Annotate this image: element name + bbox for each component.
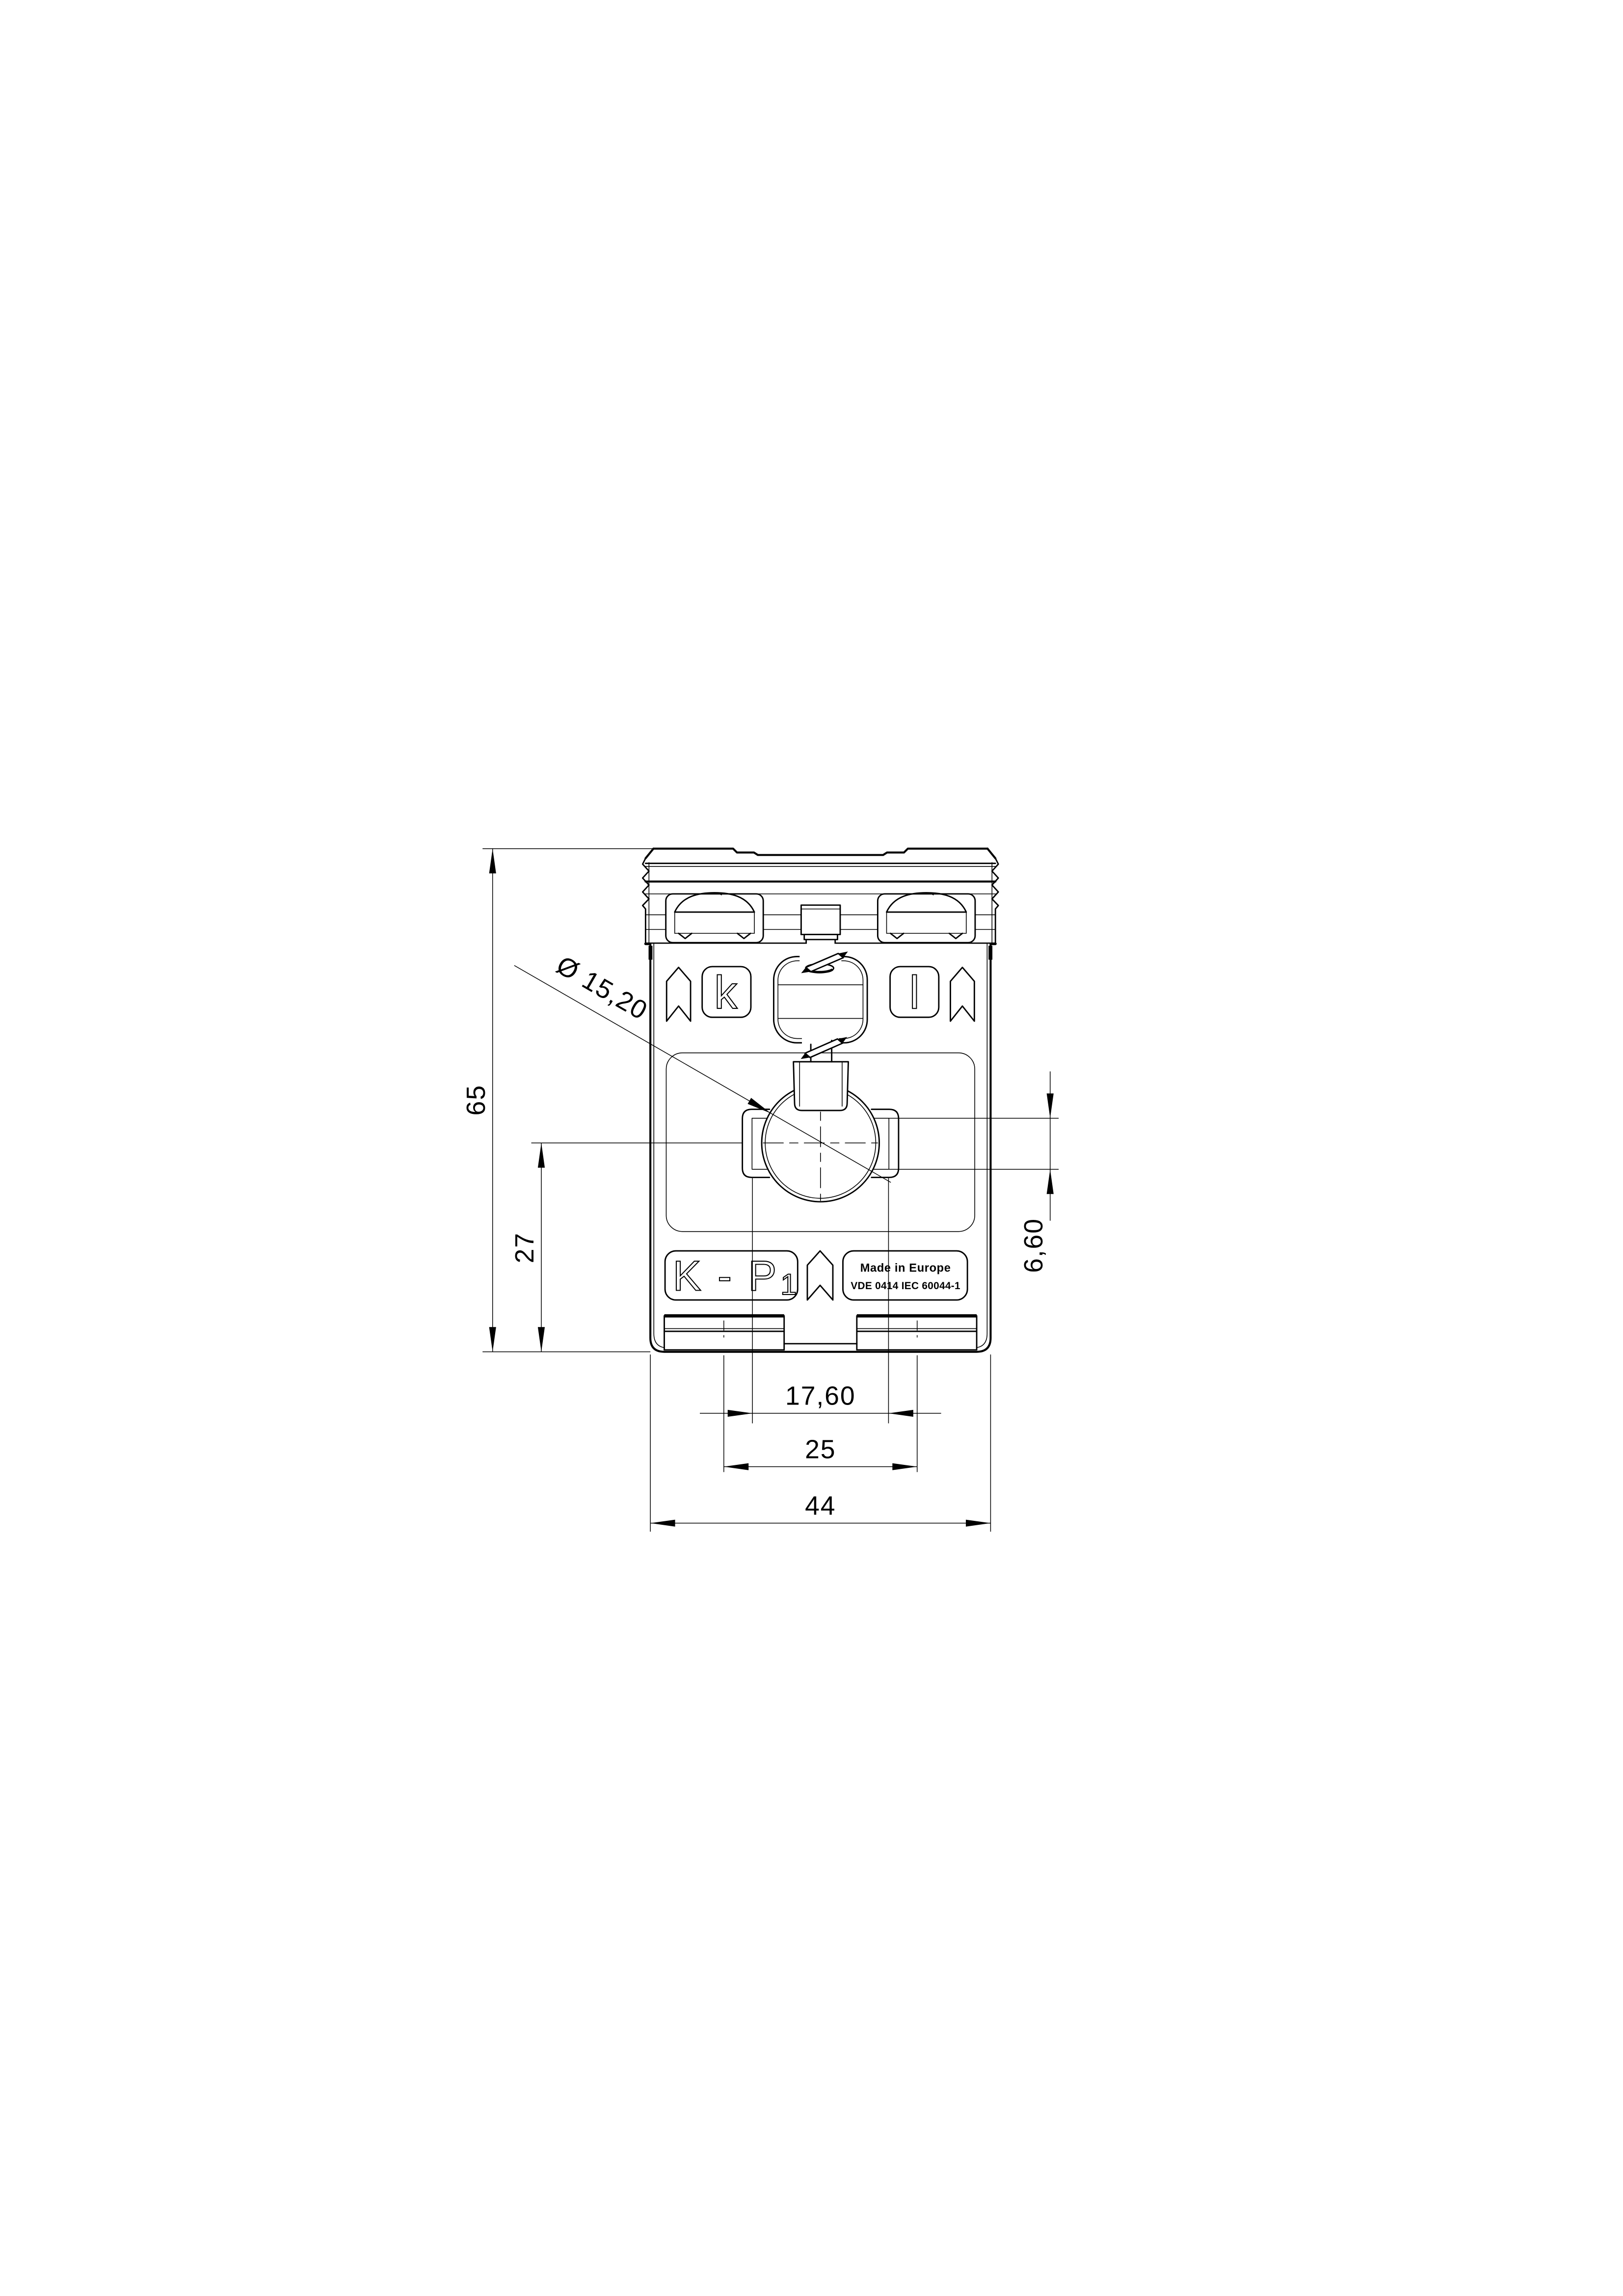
- screw-collar: [804, 935, 838, 940]
- standard-label: VDE 0414 IEC 60044-1: [851, 1280, 960, 1292]
- dim-text-27: 27: [510, 1232, 539, 1263]
- dim-overall-width: 44: [650, 1491, 990, 1526]
- terminal-clamp-left: [666, 893, 764, 943]
- dim-bracket-spacing: 17,60: [700, 1382, 941, 1417]
- winding-label-main: K - P: [673, 1252, 779, 1299]
- sealing-screw: [801, 905, 840, 940]
- dim-text-65: 65: [465, 1084, 491, 1115]
- clamp-block: [794, 1062, 849, 1110]
- dim-bore-center: 27: [510, 1143, 545, 1351]
- l-letter: l: [909, 967, 920, 1019]
- dim-text-660: 6,60: [1019, 1218, 1048, 1273]
- foot-right: [857, 1316, 977, 1350]
- k-letter: k: [714, 967, 738, 1019]
- dim-text-44: 44: [805, 1491, 836, 1520]
- screw-head: [801, 905, 840, 935]
- technical-drawing: k l: [465, 833, 1068, 1545]
- dim-slot-height: 6,60: [1019, 1072, 1054, 1273]
- dim-text-25: 25: [805, 1435, 836, 1464]
- winding-label-sub: 1: [780, 1268, 799, 1301]
- dim-text-1760: 17,60: [785, 1382, 855, 1411]
- canvas: k l: [0, 0, 1623, 2296]
- terminal-cap: [642, 849, 998, 960]
- foot-left: [665, 1316, 784, 1350]
- dim-text-diameter: Ø 15,20: [552, 950, 653, 1026]
- cap-top-profile: [653, 849, 987, 855]
- dim-slot-spacing: 25: [724, 1435, 917, 1470]
- origin-label: Made in Europe: [860, 1262, 951, 1275]
- dim-overall-height: 65: [465, 849, 496, 1352]
- terminal-clamp-right: [878, 893, 975, 943]
